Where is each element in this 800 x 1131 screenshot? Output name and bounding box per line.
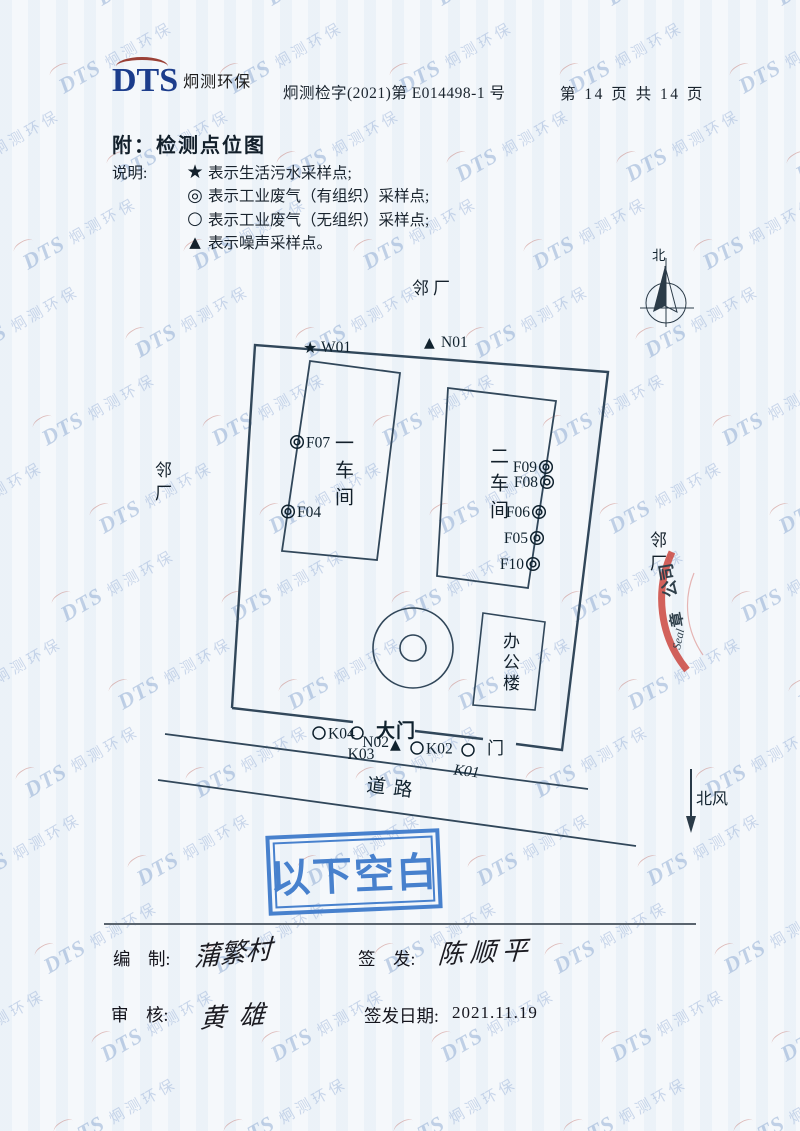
marker-f05: F05 [504,530,543,547]
tank-inner-circle [400,635,426,661]
reviewed-by-label: 审 核: [111,1002,168,1027]
main-gate-label: 大门 [376,719,416,742]
workshop1-label: 一车间 [329,433,356,514]
issue-date-label: 签发日期: [364,1003,439,1028]
workshop2-label: 二车间 [484,446,511,527]
marker-f10: F10 [500,556,539,573]
svg-text:K02: K02 [426,741,453,758]
svg-text:N01: N01 [441,334,468,351]
neighbor-factory-right-label: 邻厂 [644,531,669,577]
svg-text:F10: F10 [500,556,524,573]
svg-text:W01: W01 [321,339,351,356]
marker-f07: F07 [291,435,331,452]
road-label: 道路 [365,774,421,802]
footer-divider [104,923,696,925]
factory-boundary [232,345,608,750]
marker-k04: K04 [313,726,355,743]
stamp-text: 以下空白 [269,839,439,904]
marker-n01: ▲ N01 [424,334,468,351]
reviewed-by-signature: 黄雄 [199,993,279,1036]
compass-icon: 北 [640,248,694,327]
compass-north-label: 北 [652,248,666,263]
marker-k01: K01 [452,744,481,782]
svg-text:F07: F07 [306,435,330,452]
blank-below-stamp: 以下空白 [265,828,442,916]
svg-text:★: ★ [303,338,317,357]
tank-outer-circle [373,608,453,688]
stamp-inner-border: 以下空白 [273,836,436,909]
issued-by-signature: 陈顺平 [437,929,535,971]
svg-text:F05: F05 [504,530,528,547]
svg-text:F08: F08 [514,474,538,491]
issue-date-value: 2021.11.19 [452,1003,538,1023]
neighbor-factory-left-label: 邻厂 [149,461,174,507]
svg-text:▲: ▲ [424,335,435,351]
marker-k02: K02 [411,741,453,758]
marker-w01: ★ W01 [303,338,351,357]
svg-text:F04: F04 [297,504,321,521]
office-building-label: 办公楼 [497,632,522,695]
prepared-by-label: 编 制: [113,946,170,971]
north-wind-label: 北风 [696,790,728,808]
issued-by-label: 签 发: [358,946,415,971]
svg-text:K01: K01 [452,761,481,781]
red-seal-text-2: 章 [667,611,687,629]
marker-f08: F08 [514,474,553,491]
neighbor-factory-top-label: 邻厂 [412,274,454,299]
side-gate-label: 门 [487,739,504,758]
north-wind-arrow: 北风 [686,769,728,833]
red-seal-text-3: Seal [669,627,687,651]
